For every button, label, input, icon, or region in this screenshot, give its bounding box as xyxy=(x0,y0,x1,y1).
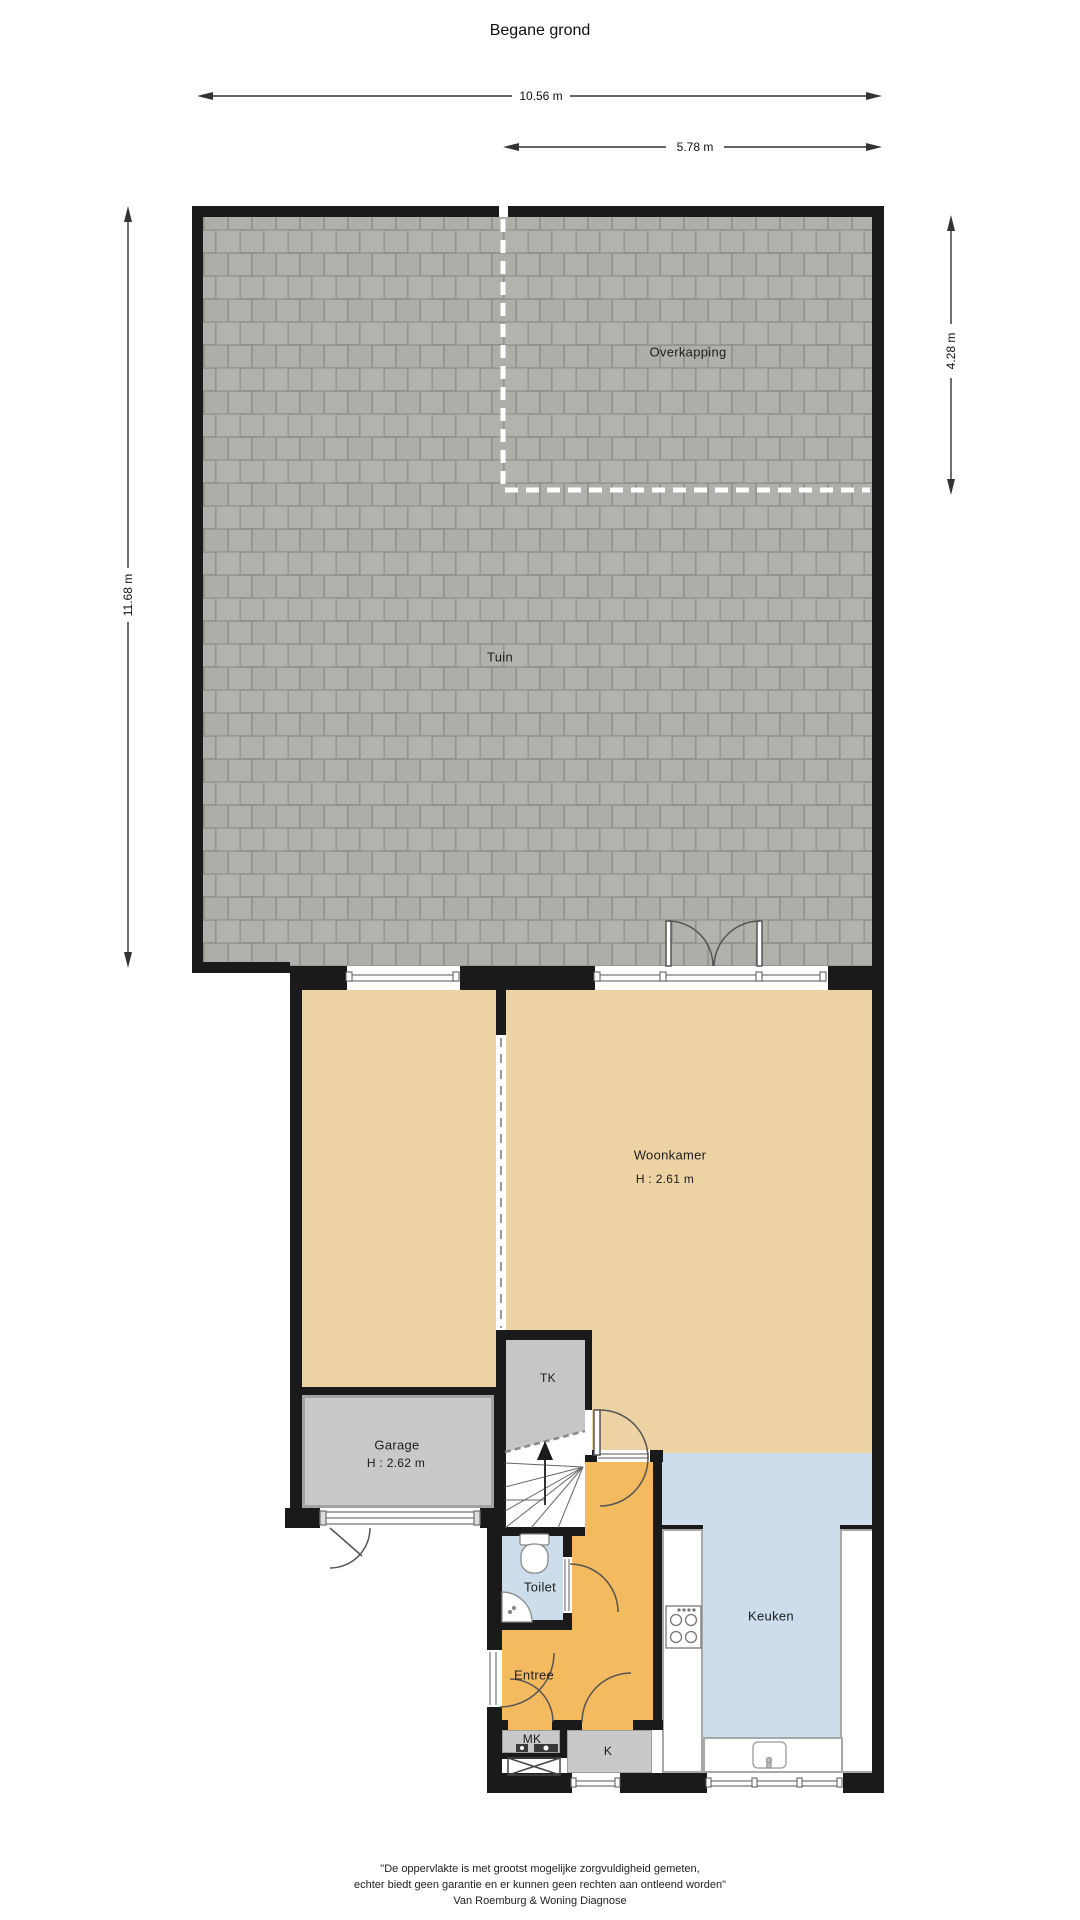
toilet-door-opening xyxy=(563,1557,572,1613)
label-toilet: Toilet xyxy=(524,1580,556,1595)
tk-top-wall xyxy=(506,1330,592,1340)
dim-overkapping-width: 5.78 m xyxy=(673,140,718,154)
right-wall xyxy=(872,206,884,1793)
garage-top-wall xyxy=(290,1387,506,1395)
tuin-paving xyxy=(203,217,872,966)
house-south-wall-b xyxy=(620,1773,707,1793)
kitchen-counter-left xyxy=(662,1529,703,1773)
house-west-wall-lower-a xyxy=(487,1508,502,1650)
front-door-opening xyxy=(487,1650,502,1707)
garage-bottom-wall-l xyxy=(285,1508,320,1528)
label-tk: TK xyxy=(540,1371,556,1385)
room-toilet xyxy=(502,1533,563,1620)
dim-garden-height: 11.68 m xyxy=(121,570,135,620)
window-left-room xyxy=(347,966,460,990)
label-mk: MK xyxy=(523,1732,542,1746)
tk-east-wall xyxy=(585,1330,592,1410)
label-keuken: Keuken xyxy=(748,1609,794,1624)
label-garage-height: H : 2.62 m xyxy=(367,1456,425,1470)
label-woonkamer: Woonkamer xyxy=(634,1148,707,1163)
window-door-woonkamer xyxy=(595,966,828,990)
counter-edge-left xyxy=(662,1525,703,1529)
garden-wall-top-right xyxy=(508,206,884,217)
tk-door-opening xyxy=(585,1410,592,1455)
mk-top-wall-b xyxy=(552,1720,582,1730)
mk-top-wall-c xyxy=(633,1720,663,1730)
toilet-top-wall xyxy=(502,1527,585,1536)
page-title: Begane grond xyxy=(0,22,1080,40)
disclaimer-line2: echter biedt geen garantie en er kunnen … xyxy=(0,1877,1080,1893)
garage-east-wall xyxy=(494,1387,506,1528)
disclaimer-line1: "De oppervlakte is met grootst mogelijke… xyxy=(0,1861,1080,1877)
kitchen-west-wall xyxy=(653,1453,662,1730)
house-south-wall-c xyxy=(843,1773,884,1793)
garden-wall-bottom-left xyxy=(192,962,290,973)
label-woonkamer-height: H : 2.61 m xyxy=(636,1172,694,1186)
mk-k-divider xyxy=(560,1730,567,1758)
hall-door-opening xyxy=(597,1450,650,1462)
house-south-wall-a xyxy=(487,1773,572,1793)
divider-wall-bottom xyxy=(496,1330,506,1387)
dim-total-width: 10.56 m xyxy=(515,89,566,103)
label-tuin: Tuin xyxy=(487,650,513,665)
garden-wall-top-left xyxy=(192,206,499,217)
label-entree: Entree xyxy=(514,1668,554,1683)
disclaimer: "De oppervlakte is met grootst mogelijke… xyxy=(0,1861,1080,1909)
house-north-wall-b xyxy=(460,966,595,990)
garage-door-opening xyxy=(320,1508,480,1528)
open-passage-dashed xyxy=(496,1035,506,1330)
label-k: K xyxy=(604,1744,612,1758)
toilet-bottom-wall xyxy=(502,1620,572,1630)
divider-wall-top xyxy=(496,990,506,1035)
mk-bottom-wall xyxy=(502,1753,560,1759)
window-keuken-south xyxy=(707,1773,843,1793)
floorplan-page: Begane grond 10.56 m 5.78 m 11.68 m 4.28… xyxy=(0,0,1080,1920)
mk-top-wall-a xyxy=(502,1720,508,1730)
window-hall-south xyxy=(572,1773,620,1793)
house-north-wall-c xyxy=(828,966,872,990)
toilet-east-wall-a xyxy=(563,1533,572,1557)
kitchen-counter-bottom xyxy=(703,1737,843,1773)
dim-overkapping-height: 4.28 m xyxy=(944,329,958,374)
house-west-wall-upper xyxy=(290,966,302,1528)
counter-edge-right xyxy=(840,1525,878,1529)
garden-wall-left xyxy=(192,206,203,973)
disclaimer-line3: Van Roemburg & Woning Diagnose xyxy=(0,1893,1080,1909)
label-garage: Garage xyxy=(374,1438,419,1453)
label-overkapping: Overkapping xyxy=(649,345,726,360)
